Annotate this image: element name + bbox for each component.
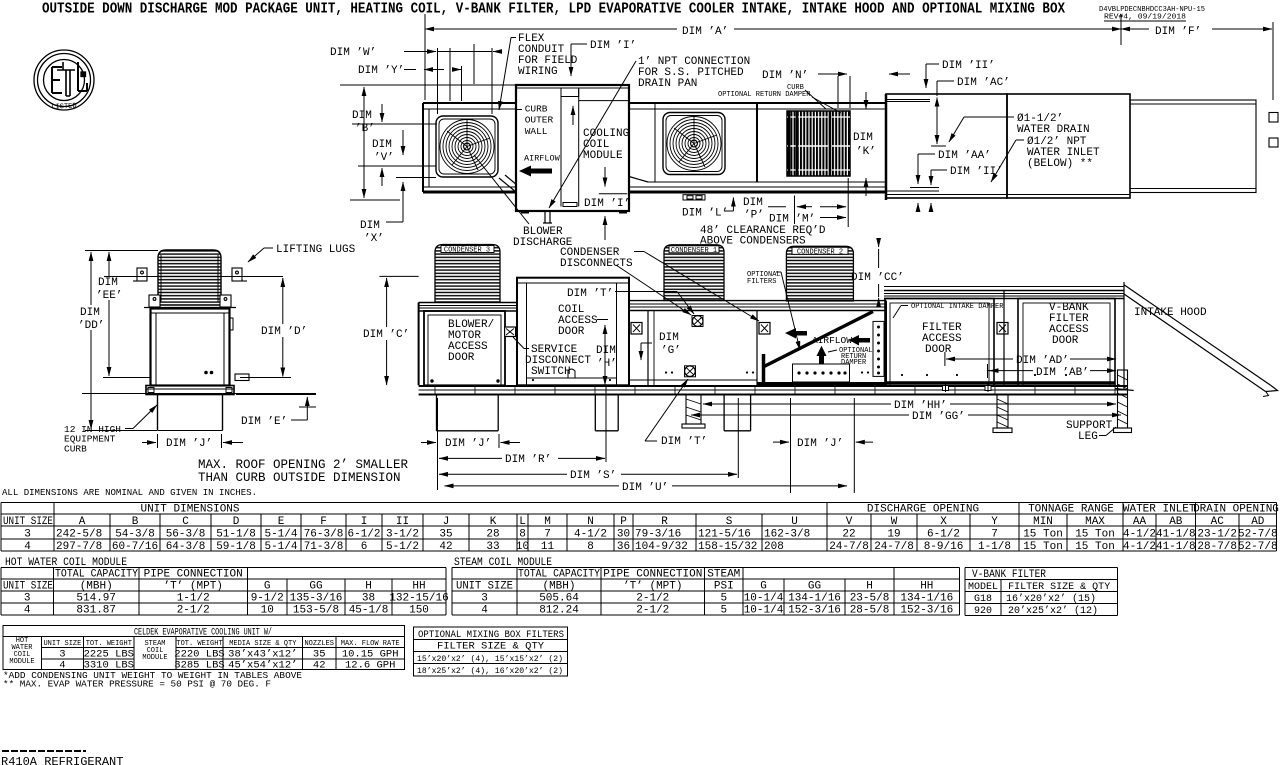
svg-text:DIM ’T’: DIM ’T’: [661, 436, 707, 448]
svg-text:CONDENSER 3: CONDENSER 3: [444, 247, 490, 255]
svg-text:REV#4, 09/19/2018: REV#4, 09/19/2018: [1104, 14, 1186, 22]
svg-text:10: 10: [261, 605, 274, 617]
svg-text:134-1/16: 134-1/16: [788, 593, 841, 605]
svg-text:MEDIA SIZE & QTY: MEDIA SIZE & QTY: [229, 640, 297, 648]
svg-text:28: 28: [486, 529, 499, 541]
svg-text:41-1/8: 41-1/8: [1156, 529, 1196, 541]
svg-text:DIM: DIM: [853, 132, 873, 144]
svg-text:DIM ’AC’: DIM ’AC’: [957, 77, 1010, 89]
svg-text:DIM ’N’: DIM ’N’: [762, 70, 808, 82]
svg-text:152-3/16: 152-3/16: [900, 605, 953, 617]
svg-text:(BELOW) **: (BELOW) **: [1027, 158, 1093, 170]
svg-text:AD: AD: [1251, 516, 1265, 528]
svg-text:DISCONNECTS: DISCONNECTS: [560, 258, 633, 270]
svg-text:GG: GG: [309, 581, 322, 593]
svg-text:45-1/8: 45-1/8: [349, 605, 389, 617]
svg-text:DIM ’S’: DIM ’S’: [570, 470, 616, 482]
svg-text:E: E: [278, 516, 285, 528]
svg-text:G18: G18: [974, 594, 992, 605]
svg-text:4-1/2: 4-1/2: [574, 529, 607, 541]
svg-text:MODEL: MODEL: [968, 582, 998, 593]
svg-text:4-1/2: 4-1/2: [1123, 529, 1156, 541]
svg-text:23-5/8: 23-5/8: [850, 593, 890, 605]
svg-text:24-7/8: 24-7/8: [829, 541, 869, 553]
svg-text:7: 7: [544, 529, 551, 541]
svg-text:514.97: 514.97: [76, 593, 116, 605]
svg-text:LISTED: LISTED: [51, 102, 77, 111]
svg-text:4: 4: [24, 605, 31, 617]
svg-text:2-1/2: 2-1/2: [177, 605, 210, 617]
svg-text:LEG: LEG: [1078, 431, 1098, 443]
svg-text:DIM ’AB’: DIM ’AB’: [1036, 367, 1089, 379]
svg-text:DIM ’AA’: DIM ’AA’: [938, 150, 991, 162]
svg-text:DIM ’AD’: DIM ’AD’: [1016, 355, 1069, 367]
svg-text:3: 3: [24, 529, 31, 541]
svg-text:CONDENSER 1: CONDENSER 1: [671, 247, 717, 255]
svg-text:UNIT DIMENSIONS: UNIT DIMENSIONS: [140, 504, 239, 516]
svg-text:DAMPER: DAMPER: [841, 359, 867, 367]
svg-text:’G’: ’G’: [661, 345, 681, 357]
svg-text:132-15/16: 132-15/16: [389, 593, 448, 605]
svg-text:N: N: [587, 516, 594, 528]
svg-text:4: 4: [24, 541, 31, 553]
svg-text:MAX: MAX: [1085, 516, 1105, 528]
svg-text:9-1/2: 9-1/2: [251, 593, 284, 605]
svg-text:L: L: [519, 516, 526, 528]
svg-text:42: 42: [439, 541, 452, 553]
svg-text:M: M: [544, 516, 551, 528]
svg-text:15’x20’x2’ (4), 15’x15’x2’ (2): 15’x20’x2’ (4), 15’x15’x2’ (2): [417, 654, 563, 664]
svg-text:30: 30: [617, 529, 630, 541]
svg-text:DRAIN PAN: DRAIN PAN: [638, 78, 697, 90]
svg-text:15 Ton: 15 Ton: [1023, 529, 1063, 541]
svg-text:71-3/8: 71-3/8: [304, 541, 344, 553]
svg-text:1-1/2: 1-1/2: [177, 593, 210, 605]
svg-text:56-3/8: 56-3/8: [166, 529, 206, 541]
svg-text:28-7/8: 28-7/8: [1197, 541, 1237, 553]
svg-text:1-1/8: 1-1/8: [978, 541, 1011, 553]
svg-text:6-1/2: 6-1/2: [927, 529, 960, 541]
svg-text:242-5/8: 242-5/8: [56, 529, 102, 541]
svg-text:297-7/8: 297-7/8: [56, 541, 102, 553]
svg-text:PSI: PSI: [714, 581, 734, 593]
svg-text:DIM ’E’: DIM ’E’: [241, 416, 287, 428]
svg-text:812.24: 812.24: [539, 605, 579, 617]
svg-text:PIPE CONNECTION: PIPE CONNECTION: [144, 569, 243, 581]
svg-text:35: 35: [439, 529, 452, 541]
svg-text:DISCHARGE OPENING: DISCHARGE OPENING: [867, 504, 979, 516]
svg-text:18’x25’x2’ (4), 16’x20’x2’ (2): 18’x25’x2’ (4), 16’x20’x2’ (2): [417, 666, 563, 676]
svg-text:WIRING: WIRING: [518, 66, 558, 78]
svg-text:’V’: ’V’: [374, 152, 394, 164]
svg-text:6: 6: [361, 541, 368, 553]
svg-text:10-1/4: 10-1/4: [744, 605, 784, 617]
svg-text:UNIT SIZE: UNIT SIZE: [3, 516, 53, 528]
svg-text:PIPE CONNECTION: PIPE CONNECTION: [603, 569, 702, 581]
svg-text:20’x25’x2’ (12): 20’x25’x2’ (12): [1008, 605, 1098, 617]
svg-text:DIM ’D’: DIM ’D’: [261, 326, 307, 338]
svg-text:920: 920: [974, 606, 992, 617]
svg-text:WATER DRAIN: WATER DRAIN: [1017, 124, 1090, 136]
svg-text:5-1/4: 5-1/4: [264, 529, 297, 541]
svg-text:CELDEK EVAPORATIVE COOLING UNI: CELDEK EVAPORATIVE COOLING UNIT W/: [134, 627, 272, 639]
svg-text:F: F: [320, 516, 327, 528]
svg-text:V-BANK FILTER: V-BANK FILTER: [972, 569, 1046, 581]
svg-text:DIM: DIM: [352, 110, 372, 122]
svg-text:CONDENSER 2: CONDENSER 2: [797, 248, 843, 256]
svg-text:10-1/4: 10-1/4: [744, 593, 784, 605]
svg-text:MAX. ROOF OPENING 2’ SMALLER: MAX. ROOF OPENING 2’ SMALLER: [198, 458, 409, 472]
svg-text:DIM ’L’: DIM ’L’: [682, 208, 728, 220]
svg-text:TOT. WEIGHT: TOT. WEIGHT: [86, 640, 132, 648]
svg-text:G: G: [264, 581, 271, 593]
svg-text:NOZZLES: NOZZLES: [304, 640, 333, 648]
svg-text:OPTIONAL MIXING BOX FILTERS: OPTIONAL MIXING BOX FILTERS: [418, 629, 564, 641]
svg-text:6-1/2: 6-1/2: [347, 529, 380, 541]
svg-text:MODULE: MODULE: [9, 658, 34, 666]
svg-text:DOOR: DOOR: [925, 344, 952, 356]
svg-text:5-1/4: 5-1/4: [264, 541, 297, 553]
svg-text:WATER INLET: WATER INLET: [1123, 504, 1196, 516]
svg-text:B: B: [132, 516, 139, 528]
svg-text:79-3/16: 79-3/16: [635, 529, 681, 541]
svg-text:4-1/2: 4-1/2: [1123, 541, 1156, 553]
svg-text:(MBH): (MBH): [542, 581, 575, 593]
svg-text:15 Ton: 15 Ton: [1023, 541, 1063, 553]
svg-text:DIM ’J’: DIM ’J’: [797, 438, 843, 450]
svg-text:52-7/8: 52-7/8: [1238, 541, 1278, 553]
svg-text:A: A: [79, 516, 86, 528]
svg-text:134-1/16: 134-1/16: [900, 593, 953, 605]
svg-text:’H’: ’H’: [597, 358, 617, 370]
svg-text:GG: GG: [808, 581, 821, 593]
svg-text:5: 5: [720, 605, 727, 617]
svg-text:TOTAL CAPACITY: TOTAL CAPACITY: [518, 569, 600, 581]
svg-text:CURB: CURB: [64, 443, 87, 454]
svg-text:DIM ’M’: DIM ’M’: [769, 214, 815, 226]
svg-text:DIM ’R’: DIM ’R’: [505, 454, 551, 466]
svg-text:OUTSIDE DOWN DISCHARGE MOD PAC: OUTSIDE DOWN DISCHARGE MOD PACKAGE UNIT,…: [42, 1, 1065, 18]
svg-text:C: C: [182, 516, 189, 528]
svg-text:MIN: MIN: [1033, 516, 1053, 528]
svg-text:10: 10: [516, 541, 529, 553]
svg-text:158-15/32: 158-15/32: [698, 541, 757, 553]
svg-text:7: 7: [991, 529, 998, 541]
svg-text:DIM ’W’: DIM ’W’: [330, 47, 376, 59]
svg-text:15 Ton: 15 Ton: [1075, 541, 1115, 553]
svg-text:’T’ (MPT): ’T’ (MPT): [623, 581, 682, 593]
svg-text:(MBH): (MBH): [80, 581, 113, 593]
svg-text:DIM ’A’: DIM ’A’: [682, 26, 728, 38]
svg-text:51-1/8: 51-1/8: [216, 529, 256, 541]
svg-text:DIM ’CC’: DIM ’CC’: [851, 272, 904, 284]
svg-text:UNIT SIZE: UNIT SIZE: [456, 581, 513, 593]
svg-text:DOOR: DOOR: [558, 326, 585, 338]
svg-text:’T’ (MPT): ’T’ (MPT): [163, 581, 222, 593]
svg-text:DIM ’U’: DIM ’U’: [622, 482, 668, 494]
svg-text:’P’: ’P’: [744, 210, 764, 222]
svg-text:2-1/2: 2-1/2: [636, 593, 669, 605]
svg-text:LIFTING LUGS: LIFTING LUGS: [276, 244, 356, 256]
svg-text:DIM ’I’: DIM ’I’: [584, 198, 630, 210]
svg-text:DIM ’Y’: DIM ’Y’: [358, 65, 404, 77]
svg-text:DIM: DIM: [80, 307, 100, 319]
svg-text:STEAM: STEAM: [707, 569, 740, 581]
svg-text:104-9/32: 104-9/32: [635, 541, 688, 553]
svg-text:WALL: WALL: [525, 126, 548, 137]
svg-text:I: I: [361, 516, 368, 528]
svg-text:TOT. WEIGHT: TOT. WEIGHT: [176, 640, 222, 648]
svg-text:59-1/8: 59-1/8: [216, 541, 256, 553]
svg-text:OPTIONAL RETURN DAMPER: OPTIONAL RETURN DAMPER: [718, 91, 811, 99]
svg-text:AC: AC: [1211, 516, 1225, 528]
svg-text:FILTER SIZE & QTY: FILTER SIZE & QTY: [1008, 582, 1110, 593]
svg-text:’K’: ’K’: [856, 146, 876, 158]
svg-text:2-1/2: 2-1/2: [636, 605, 669, 617]
svg-text:5: 5: [720, 593, 727, 605]
svg-text:U: U: [791, 516, 798, 528]
svg-text:HH: HH: [412, 581, 425, 593]
svg-text:DIM ’J’: DIM ’J’: [445, 438, 491, 450]
svg-text:11: 11: [541, 541, 555, 553]
svg-text:42: 42: [313, 660, 326, 672]
svg-text:33: 33: [486, 541, 499, 553]
svg-text:DIM: DIM: [596, 345, 616, 357]
svg-text:S: S: [726, 516, 733, 528]
svg-text:AIRFLOW: AIRFLOW: [812, 335, 852, 346]
svg-text:II: II: [396, 516, 409, 528]
svg-text:ALL DIMENSIONS ARE NOMINAL AND: ALL DIMENSIONS ARE NOMINAL AND GIVEN IN …: [2, 487, 257, 498]
svg-text:121-5/16: 121-5/16: [698, 529, 751, 541]
svg-text:UNIT SIZE: UNIT SIZE: [43, 640, 81, 648]
svg-text:208: 208: [764, 541, 784, 553]
svg-text:15 Ton: 15 Ton: [1075, 529, 1115, 541]
svg-text:FILTERS: FILTERS: [747, 278, 776, 286]
svg-text:DIM: DIM: [98, 277, 118, 289]
svg-text:831.87: 831.87: [76, 605, 116, 617]
svg-text:TONNAGE RANGE: TONNAGE RANGE: [1028, 504, 1114, 516]
svg-text:H: H: [866, 581, 873, 593]
svg-text:OPTIONAL INTAKE DAMPER: OPTIONAL INTAKE DAMPER: [911, 303, 1004, 311]
svg-text:54-3/8: 54-3/8: [115, 529, 155, 541]
svg-text:60-7/16: 60-7/16: [112, 541, 158, 553]
svg-text:DOOR: DOOR: [1052, 335, 1079, 347]
svg-text:24-7/8: 24-7/8: [874, 541, 914, 553]
svg-text:16’x20’x2’ (15): 16’x20’x2’ (15): [1006, 593, 1096, 605]
svg-text:MAX. FLOW RATE: MAX. FLOW RATE: [341, 640, 400, 648]
svg-text:DIM: DIM: [659, 332, 679, 344]
svg-text:5-1/2: 5-1/2: [386, 541, 419, 553]
svg-text:D: D: [233, 516, 240, 528]
svg-text:’B’: ’B’: [355, 123, 375, 135]
svg-text:28-5/8: 28-5/8: [850, 605, 890, 617]
svg-text:** MAX. EVAP WATER PRESSURE =: ** MAX. EVAP WATER PRESSURE = 50 PSI @ 7…: [3, 679, 271, 690]
svg-text:W: W: [891, 516, 898, 528]
svg-text:DIM ’GG’: DIM ’GG’: [912, 411, 965, 423]
svg-text:505.64: 505.64: [539, 593, 579, 605]
svg-text:4: 4: [481, 605, 488, 617]
svg-text:K: K: [490, 516, 497, 528]
svg-text:DIM ’T’: DIM ’T’: [567, 288, 613, 300]
svg-text:OUTER: OUTER: [525, 115, 554, 126]
svg-text:41-1/8: 41-1/8: [1156, 541, 1196, 553]
svg-text:22: 22: [842, 529, 855, 541]
svg-text:V: V: [846, 516, 853, 528]
svg-text:36: 36: [617, 541, 630, 553]
svg-text:R410A REFRIGERANT: R410A REFRIGERANT: [1, 755, 123, 765]
svg-text:153-5/8: 153-5/8: [293, 605, 339, 617]
svg-text:J: J: [443, 516, 450, 528]
svg-text:G: G: [760, 581, 767, 593]
svg-text:FILTER SIZE & QTY: FILTER SIZE & QTY: [437, 641, 545, 653]
svg-text:152-3/16: 152-3/16: [788, 605, 841, 617]
svg-text:AIRFLOW: AIRFLOW: [524, 154, 561, 164]
svg-text:3: 3: [24, 593, 31, 605]
svg-text:3: 3: [481, 593, 488, 605]
svg-text:DIM ’F’: DIM ’F’: [1155, 26, 1201, 38]
svg-text:DIM ’II’: DIM ’II’: [942, 60, 995, 72]
svg-text:AA: AA: [1133, 516, 1147, 528]
svg-text:8: 8: [587, 541, 594, 553]
svg-text:162-3/8: 162-3/8: [764, 529, 810, 541]
svg-text:150: 150: [409, 605, 429, 617]
svg-text:H: H: [365, 581, 372, 593]
svg-text:DIM ’J’: DIM ’J’: [166, 438, 212, 450]
svg-text:23-1/2: 23-1/2: [1197, 529, 1237, 541]
svg-text:DIM ’C’: DIM ’C’: [363, 329, 409, 341]
svg-text:8: 8: [519, 529, 526, 541]
svg-text:Y: Y: [991, 516, 998, 528]
svg-text:SWITCH: SWITCH: [531, 366, 571, 378]
svg-text:R: R: [661, 516, 668, 528]
svg-text:UNIT SIZE: UNIT SIZE: [3, 581, 53, 593]
svg-text:THAN CURB OUTSIDE DIMENSION: THAN CURB OUTSIDE DIMENSION: [198, 471, 401, 485]
svg-text:DIM: DIM: [360, 220, 380, 232]
svg-text:3-1/2: 3-1/2: [386, 529, 419, 541]
svg-text:DIM: DIM: [372, 139, 392, 151]
svg-text:AB: AB: [1169, 516, 1183, 528]
svg-text:DIM: DIM: [743, 197, 763, 209]
svg-text:CURB: CURB: [525, 104, 548, 115]
svg-text:DRAIN OPENING: DRAIN OPENING: [1193, 504, 1279, 516]
svg-text:DIM ’I’: DIM ’I’: [590, 40, 636, 52]
svg-text:P: P: [620, 516, 627, 528]
svg-text:X: X: [940, 516, 947, 528]
svg-text:76-3/8: 76-3/8: [304, 529, 344, 541]
svg-text:135-3/16: 135-3/16: [290, 593, 343, 605]
svg-text:TOTAL CAPACITY: TOTAL CAPACITY: [55, 569, 138, 581]
svg-text:MODULE: MODULE: [142, 654, 167, 662]
svg-text:38: 38: [362, 593, 375, 605]
svg-text:MODULE: MODULE: [583, 150, 623, 162]
svg-text:12.6 GPH: 12.6 GPH: [345, 660, 395, 672]
svg-text:HH: HH: [920, 581, 933, 593]
svg-text:’X’: ’X’: [364, 233, 384, 245]
svg-text:64-3/8: 64-3/8: [166, 541, 206, 553]
svg-text:52-7/8: 52-7/8: [1238, 529, 1278, 541]
svg-text:8-9/16: 8-9/16: [924, 541, 964, 553]
svg-text:19: 19: [887, 529, 900, 541]
svg-text:DOOR: DOOR: [448, 352, 475, 364]
